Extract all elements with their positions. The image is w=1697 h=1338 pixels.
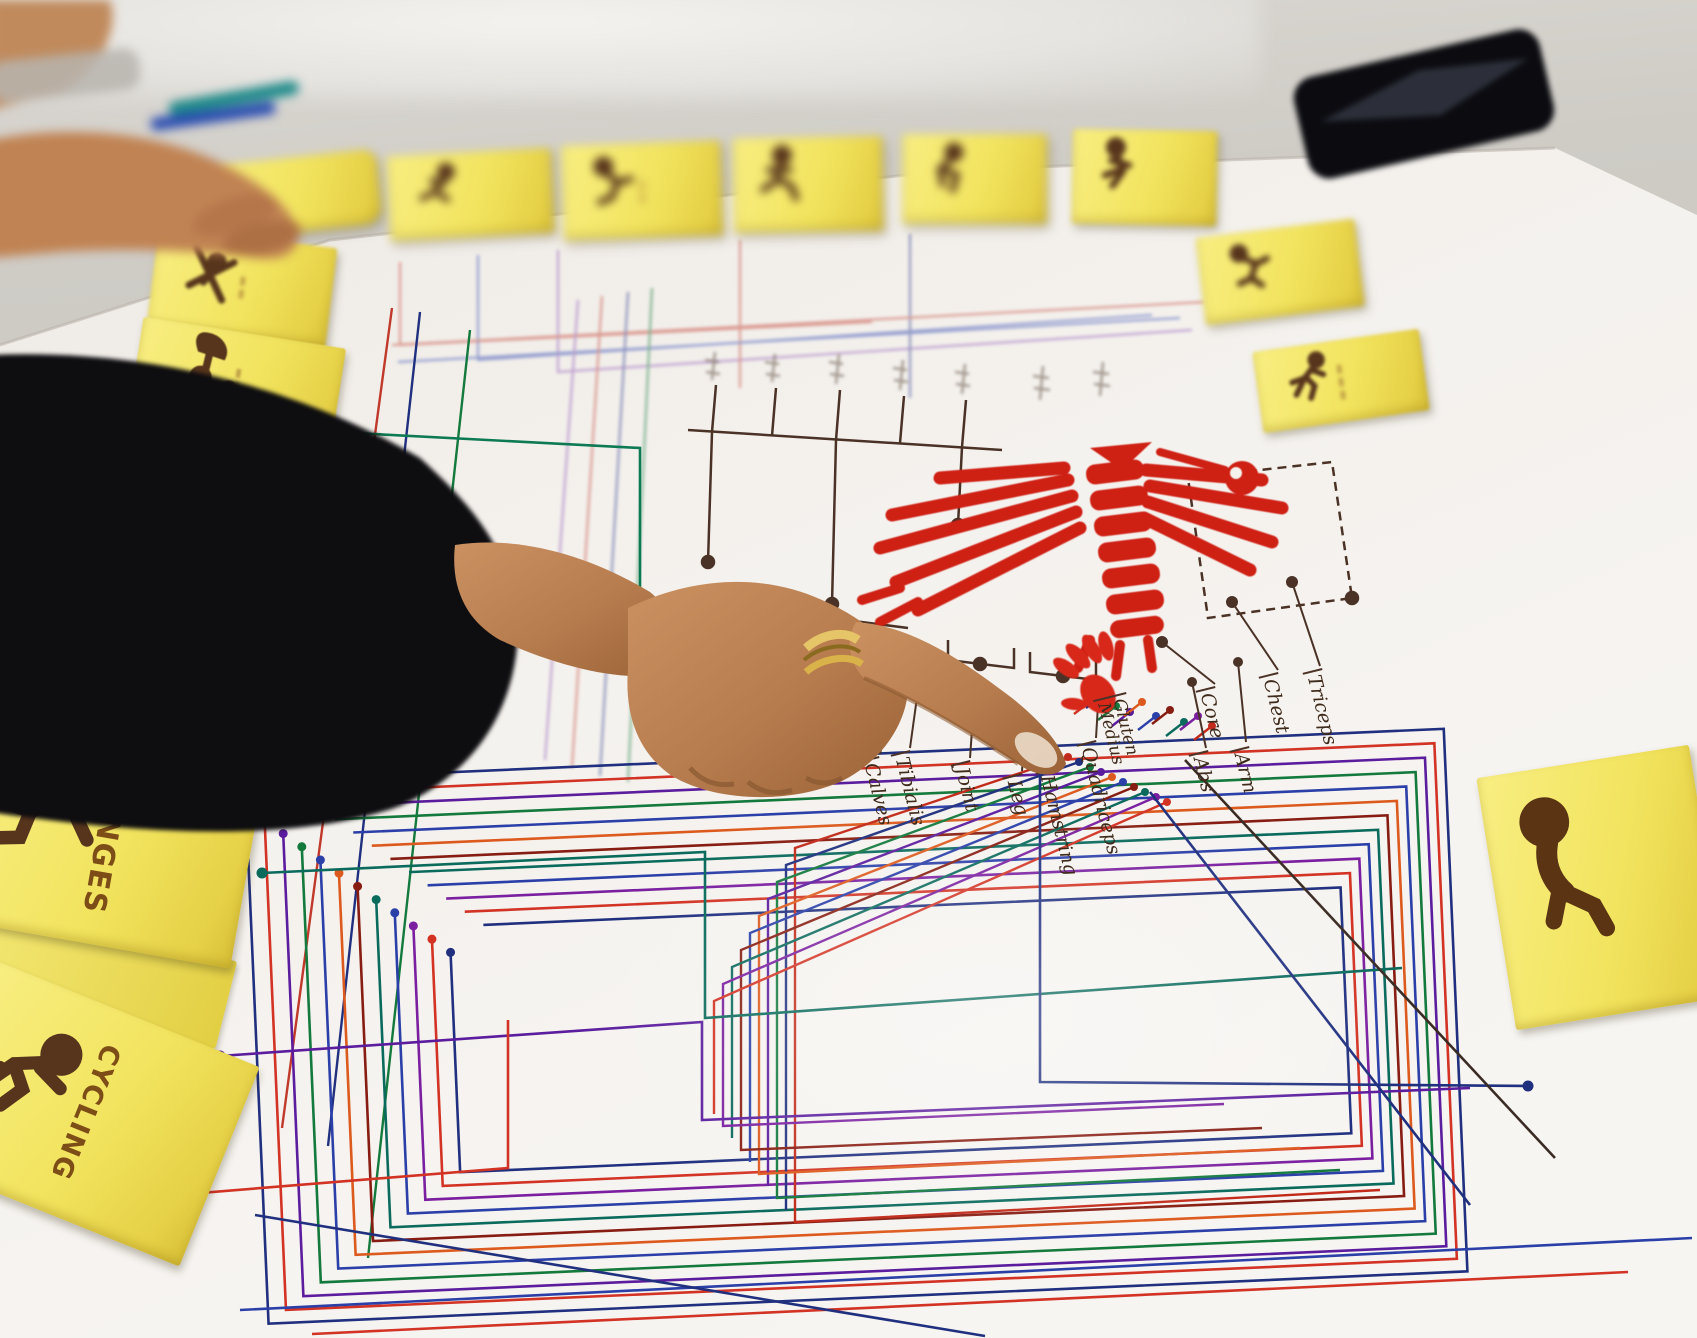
second-person-hand <box>0 0 304 262</box>
foreground-props <box>0 0 1697 1338</box>
smartphone[interactable] <box>1290 25 1559 183</box>
photo-scene: Core Chest Triceps Gluten Medius Quadric… <box>0 0 1697 1338</box>
